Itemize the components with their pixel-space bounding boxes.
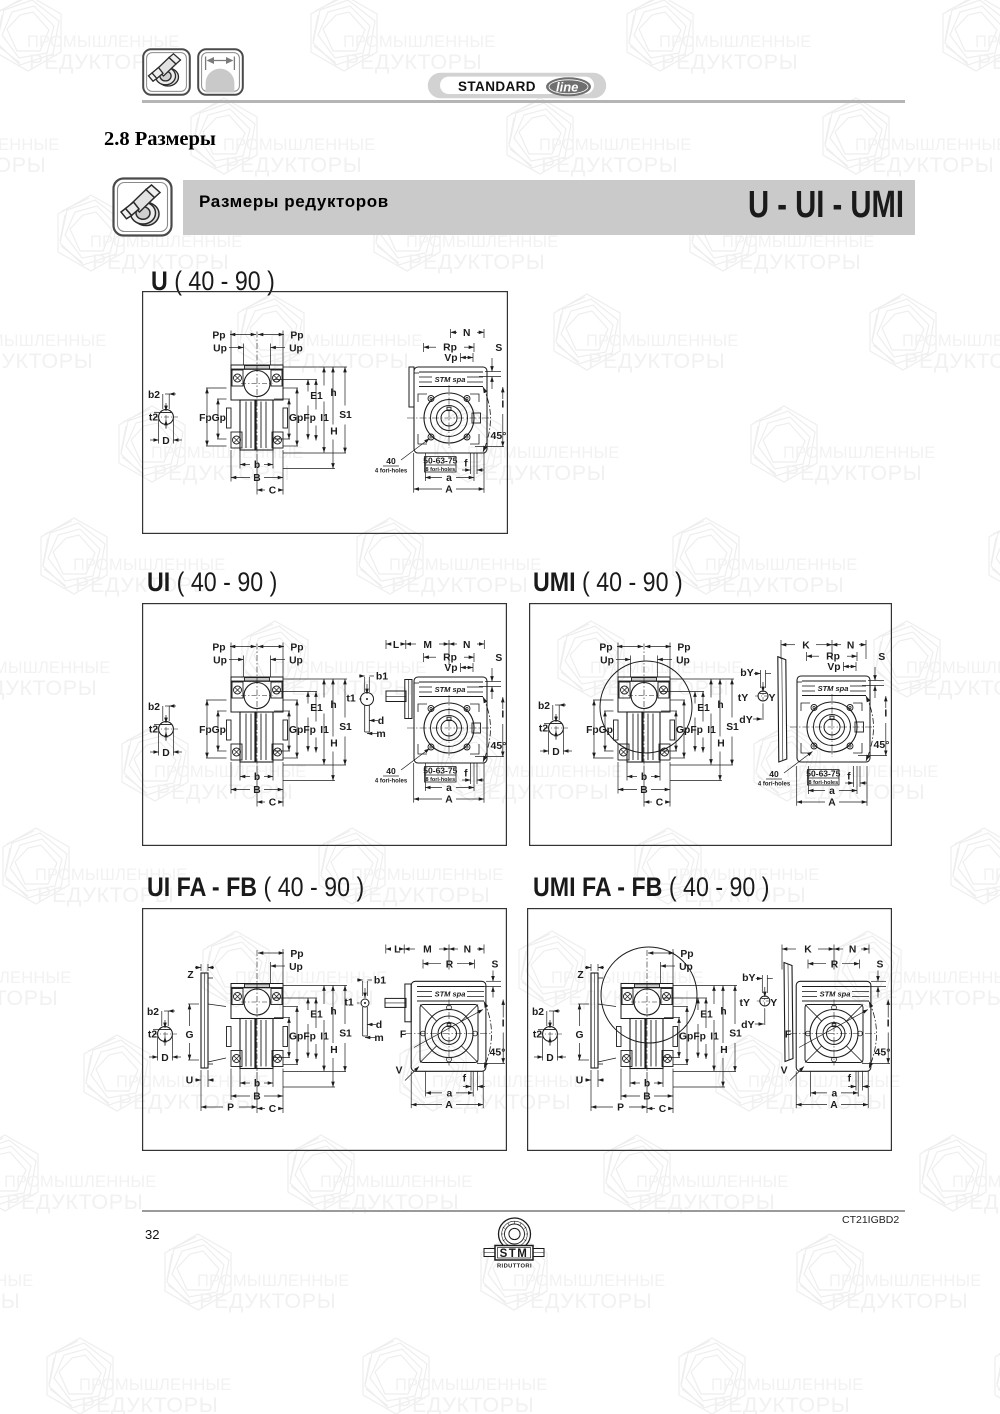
svg-text:V: V — [396, 1066, 403, 1077]
svg-text:STM: STM — [500, 1248, 529, 1260]
svg-text:RIDUTTORI: RIDUTTORI — [497, 1264, 532, 1270]
svg-text:45°: 45° — [491, 740, 507, 752]
svg-text:Pp: Pp — [290, 643, 303, 654]
svg-text:Vp: Vp — [444, 663, 457, 674]
svg-text:R: R — [446, 960, 454, 971]
svg-text:45°: 45° — [875, 1047, 891, 1059]
svg-text:S1: S1 — [339, 410, 352, 421]
svg-text:50-63-75: 50-63-75 — [423, 765, 457, 775]
svg-text:a: a — [447, 1089, 453, 1100]
svg-text:A: A — [830, 1100, 838, 1111]
svg-text:L: L — [393, 640, 399, 651]
svg-text:S: S — [495, 653, 502, 664]
svg-text:I1: I1 — [320, 725, 329, 736]
svg-text:H: H — [330, 1045, 337, 1056]
svg-text:A: A — [828, 798, 836, 809]
svg-text:Up: Up — [289, 962, 303, 973]
svg-text:Up: Up — [213, 344, 227, 355]
svg-text:a: a — [832, 1089, 838, 1100]
svg-text:a: a — [446, 473, 452, 484]
svg-text:m: m — [374, 1032, 383, 1044]
svg-text:D: D — [161, 1053, 168, 1064]
svg-text:U: U — [186, 1076, 193, 1087]
svg-text:V: V — [781, 1066, 788, 1077]
svg-text:h: h — [330, 700, 336, 711]
svg-text:STM spa: STM spa — [818, 684, 849, 693]
svg-text:line: line — [556, 80, 578, 95]
svg-text:E1: E1 — [310, 703, 323, 714]
svg-text:D: D — [546, 1053, 553, 1064]
svg-text:I1: I1 — [710, 1032, 719, 1043]
svg-text:I: I — [884, 709, 887, 720]
svg-text:45°: 45° — [490, 1047, 506, 1059]
svg-text:H: H — [717, 739, 724, 750]
svg-text:a: a — [446, 783, 452, 794]
svg-text:A: A — [445, 1100, 453, 1111]
svg-text:bY: bY — [742, 972, 755, 984]
svg-text:Rp: Rp — [443, 343, 457, 354]
svg-text:U: U — [576, 1076, 583, 1087]
svg-text:50-63-75: 50-63-75 — [806, 768, 840, 778]
svg-text:N: N — [847, 641, 854, 652]
svg-text:4 fori-holes: 4 fori-holes — [375, 469, 408, 475]
svg-text:C: C — [659, 1104, 667, 1115]
svg-text:45°: 45° — [491, 430, 507, 442]
svg-text:m: m — [376, 728, 385, 740]
svg-text:FpGp: FpGp — [199, 725, 226, 736]
svg-text:f: f — [464, 769, 468, 780]
svg-text:40: 40 — [386, 766, 396, 776]
svg-text:F: F — [400, 1030, 406, 1041]
svg-text:S1: S1 — [339, 722, 352, 733]
svg-text:D: D — [162, 436, 169, 447]
svg-text:A: A — [445, 795, 453, 806]
svg-text:Vp: Vp — [444, 353, 457, 364]
svg-text:C: C — [269, 798, 277, 809]
svg-text:FpGp: FpGp — [199, 413, 226, 424]
svg-text:F: F — [785, 1030, 791, 1041]
svg-text:GpFp: GpFp — [289, 413, 316, 424]
svg-text:d: d — [376, 1019, 382, 1031]
svg-text:I1: I1 — [320, 1032, 329, 1043]
svg-text:b1: b1 — [376, 671, 388, 683]
svg-text:Pp: Pp — [290, 949, 303, 960]
svg-text:STM spa: STM spa — [435, 685, 466, 694]
svg-text:t1: t1 — [344, 997, 353, 1009]
svg-text:P: P — [227, 1103, 234, 1114]
svg-text:S1: S1 — [339, 1029, 352, 1040]
svg-text:FpGp: FpGp — [586, 725, 613, 736]
svg-text:E1: E1 — [700, 1010, 713, 1021]
svg-text:Y: Y — [768, 692, 775, 704]
svg-text:d: d — [378, 715, 384, 727]
svg-text:GpFp: GpFp — [289, 1032, 316, 1043]
svg-text:I1: I1 — [320, 413, 329, 424]
svg-text:Pp: Pp — [677, 643, 690, 654]
svg-text:STANDARD: STANDARD — [458, 79, 536, 94]
svg-text:Up: Up — [213, 656, 227, 667]
svg-text:A: A — [445, 485, 453, 496]
svg-text:4 fori-holes: 4 fori-holes — [758, 782, 791, 788]
svg-text:G: G — [185, 1030, 193, 1041]
svg-text:tY: tY — [738, 692, 749, 704]
svg-text:45°: 45° — [874, 739, 890, 751]
svg-text:GpFp: GpFp — [676, 725, 703, 736]
svg-text:K: K — [802, 641, 810, 652]
svg-text:f: f — [463, 1074, 467, 1085]
svg-text:GpFp: GpFp — [679, 1032, 706, 1043]
svg-text:C: C — [269, 1104, 277, 1115]
svg-text:H: H — [720, 1045, 727, 1056]
svg-text:b2: b2 — [148, 390, 160, 401]
svg-text:Z: Z — [577, 970, 583, 981]
svg-text:N: N — [463, 328, 470, 339]
svg-text:f: f — [847, 772, 851, 783]
svg-text:C: C — [656, 798, 664, 809]
svg-text:t2: t2 — [149, 413, 158, 424]
svg-text:I: I — [502, 1019, 505, 1030]
svg-text:t2: t2 — [533, 1030, 542, 1041]
svg-text:E1: E1 — [697, 703, 710, 714]
svg-text:H: H — [330, 739, 337, 750]
svg-text:Up: Up — [600, 656, 614, 667]
svg-text:b2: b2 — [538, 701, 550, 712]
svg-text:b2: b2 — [532, 1007, 544, 1018]
svg-text:I: I — [501, 400, 504, 411]
svg-text:h: h — [720, 1007, 726, 1018]
svg-text:Z: Z — [187, 970, 193, 981]
svg-text:STM spa: STM spa — [435, 375, 466, 384]
svg-text:a: a — [829, 786, 835, 797]
svg-text:Rp: Rp — [443, 653, 457, 664]
svg-text:h: h — [330, 1007, 336, 1018]
svg-text:f: f — [464, 459, 468, 470]
svg-text:h: h — [717, 700, 723, 711]
svg-text:f: f — [848, 1074, 852, 1085]
svg-text:I1: I1 — [707, 725, 716, 736]
svg-text:C: C — [269, 486, 277, 497]
svg-text:h: h — [330, 388, 336, 399]
svg-text:G: G — [575, 1030, 583, 1041]
svg-text:R: R — [831, 960, 839, 971]
svg-text:50-63-75: 50-63-75 — [423, 455, 457, 465]
svg-text:40: 40 — [769, 769, 779, 779]
svg-text:Up: Up — [289, 344, 303, 355]
svg-text:Pp: Pp — [599, 643, 612, 654]
svg-text:D: D — [162, 748, 169, 759]
svg-text:S: S — [495, 343, 502, 354]
svg-text:S: S — [876, 960, 883, 971]
svg-text:P: P — [617, 1103, 624, 1114]
svg-text:bY: bY — [740, 667, 753, 679]
svg-text:dY: dY — [741, 1019, 754, 1031]
svg-text:40: 40 — [386, 456, 396, 466]
svg-text:N: N — [849, 945, 856, 956]
svg-text:STM spa: STM spa — [435, 990, 466, 999]
svg-text:dY: dY — [739, 714, 752, 726]
svg-text:H: H — [330, 427, 337, 438]
svg-text:M: M — [423, 945, 432, 956]
svg-text:K: K — [804, 945, 812, 956]
svg-text:M: M — [423, 640, 432, 651]
svg-text:Vp: Vp — [827, 662, 840, 673]
svg-text:t2: t2 — [149, 725, 158, 736]
svg-text:b2: b2 — [148, 702, 160, 713]
svg-text:Pp: Pp — [680, 949, 693, 960]
svg-text:N: N — [463, 640, 470, 651]
svg-text:I: I — [501, 710, 504, 721]
svg-text:N: N — [464, 945, 471, 956]
svg-text:Up: Up — [676, 656, 690, 667]
svg-text:t2: t2 — [148, 1030, 157, 1041]
svg-text:t1: t1 — [346, 693, 355, 705]
svg-text:b1: b1 — [374, 975, 386, 987]
svg-text:Up: Up — [289, 656, 303, 667]
svg-text:Rp: Rp — [826, 652, 840, 663]
svg-text:Pp: Pp — [212, 643, 225, 654]
svg-text:S: S — [491, 960, 498, 971]
svg-text:E1: E1 — [310, 1010, 323, 1021]
svg-text:b2: b2 — [147, 1007, 159, 1018]
svg-text:tY: tY — [740, 997, 751, 1009]
svg-text:GpFp: GpFp — [289, 725, 316, 736]
svg-text:t2: t2 — [539, 724, 548, 735]
svg-text:Up: Up — [679, 962, 693, 973]
svg-text:D: D — [552, 747, 559, 758]
svg-text:S: S — [878, 652, 885, 663]
svg-text:STM spa: STM spa — [820, 990, 851, 999]
svg-text:Pp: Pp — [212, 331, 225, 342]
svg-text:I: I — [887, 1019, 890, 1030]
svg-text:4 fori-holes: 4 fori-holes — [375, 779, 408, 785]
svg-text:E1: E1 — [310, 391, 323, 402]
svg-text:L: L — [394, 945, 400, 956]
svg-text:Pp: Pp — [290, 331, 303, 342]
svg-text:S1: S1 — [726, 722, 739, 733]
svg-text:Y: Y — [770, 997, 777, 1009]
